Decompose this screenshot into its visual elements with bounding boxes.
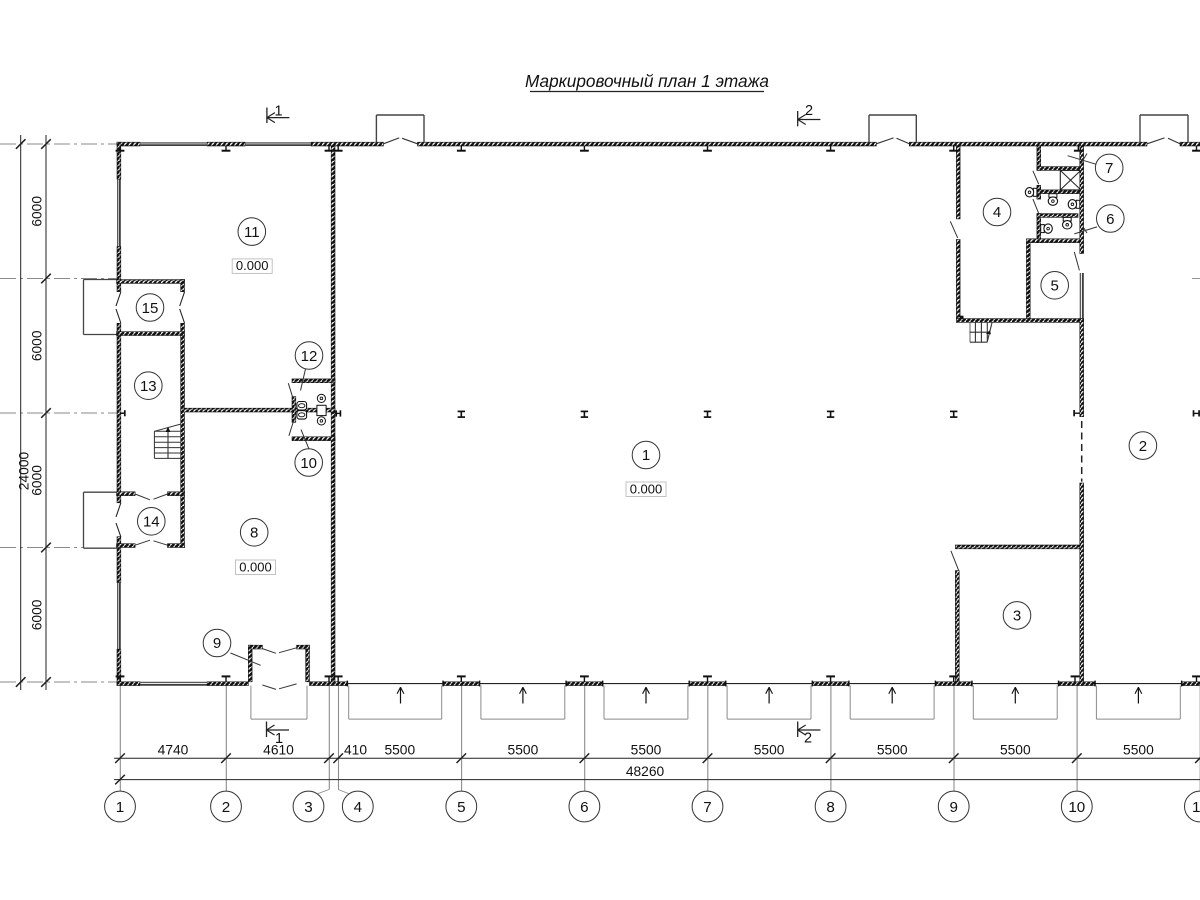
svg-text:24000: 24000 bbox=[17, 451, 32, 490]
svg-text:3: 3 bbox=[1013, 608, 1021, 625]
svg-text:5500: 5500 bbox=[1123, 743, 1154, 758]
svg-text:410: 410 bbox=[344, 743, 367, 758]
svg-text:9: 9 bbox=[949, 799, 957, 816]
svg-text:5500: 5500 bbox=[877, 743, 908, 758]
svg-text:4: 4 bbox=[993, 204, 1001, 221]
svg-text:6000: 6000 bbox=[30, 196, 45, 227]
svg-text:5: 5 bbox=[1051, 278, 1059, 295]
svg-text:5500: 5500 bbox=[754, 743, 785, 758]
svg-text:4: 4 bbox=[354, 799, 362, 816]
svg-text:3: 3 bbox=[304, 799, 312, 816]
svg-text:10: 10 bbox=[1068, 799, 1085, 816]
svg-text:5500: 5500 bbox=[1000, 743, 1031, 758]
svg-text:6: 6 bbox=[580, 799, 588, 816]
svg-text:Маркировочный план 1 этажа: Маркировочный план 1 этажа bbox=[525, 71, 769, 91]
svg-text:5500: 5500 bbox=[508, 743, 539, 758]
svg-text:6000: 6000 bbox=[30, 330, 45, 361]
svg-text:7: 7 bbox=[1105, 160, 1113, 177]
svg-text:8: 8 bbox=[826, 799, 834, 816]
svg-text:7: 7 bbox=[703, 799, 711, 816]
svg-text:0.000: 0.000 bbox=[239, 559, 272, 574]
svg-text:0.000: 0.000 bbox=[236, 258, 269, 273]
svg-text:5500: 5500 bbox=[384, 743, 415, 758]
svg-text:13: 13 bbox=[140, 378, 157, 395]
svg-text:1: 1 bbox=[116, 799, 124, 816]
svg-text:11: 11 bbox=[244, 224, 260, 241]
svg-text:15: 15 bbox=[142, 300, 159, 317]
svg-text:1: 1 bbox=[274, 104, 282, 120]
svg-text:6: 6 bbox=[1106, 211, 1114, 228]
svg-text:1: 1 bbox=[642, 447, 650, 464]
svg-text:14: 14 bbox=[143, 514, 160, 531]
svg-text:11: 11 bbox=[1192, 799, 1200, 816]
svg-text:4740: 4740 bbox=[158, 743, 189, 758]
svg-text:5: 5 bbox=[457, 799, 465, 816]
svg-text:5500: 5500 bbox=[631, 743, 662, 758]
svg-text:2: 2 bbox=[804, 731, 812, 747]
svg-text:6000: 6000 bbox=[30, 599, 45, 630]
svg-text:2: 2 bbox=[222, 799, 230, 816]
svg-text:4610: 4610 bbox=[263, 743, 294, 758]
svg-text:10: 10 bbox=[300, 455, 317, 472]
svg-text:6000: 6000 bbox=[30, 465, 45, 496]
svg-text:2: 2 bbox=[805, 103, 813, 119]
svg-text:2: 2 bbox=[1139, 438, 1147, 455]
svg-text:12: 12 bbox=[301, 348, 318, 365]
svg-text:0.000: 0.000 bbox=[630, 481, 663, 496]
svg-text:9: 9 bbox=[213, 635, 221, 652]
svg-text:48260: 48260 bbox=[626, 764, 665, 779]
svg-text:8: 8 bbox=[250, 525, 258, 542]
